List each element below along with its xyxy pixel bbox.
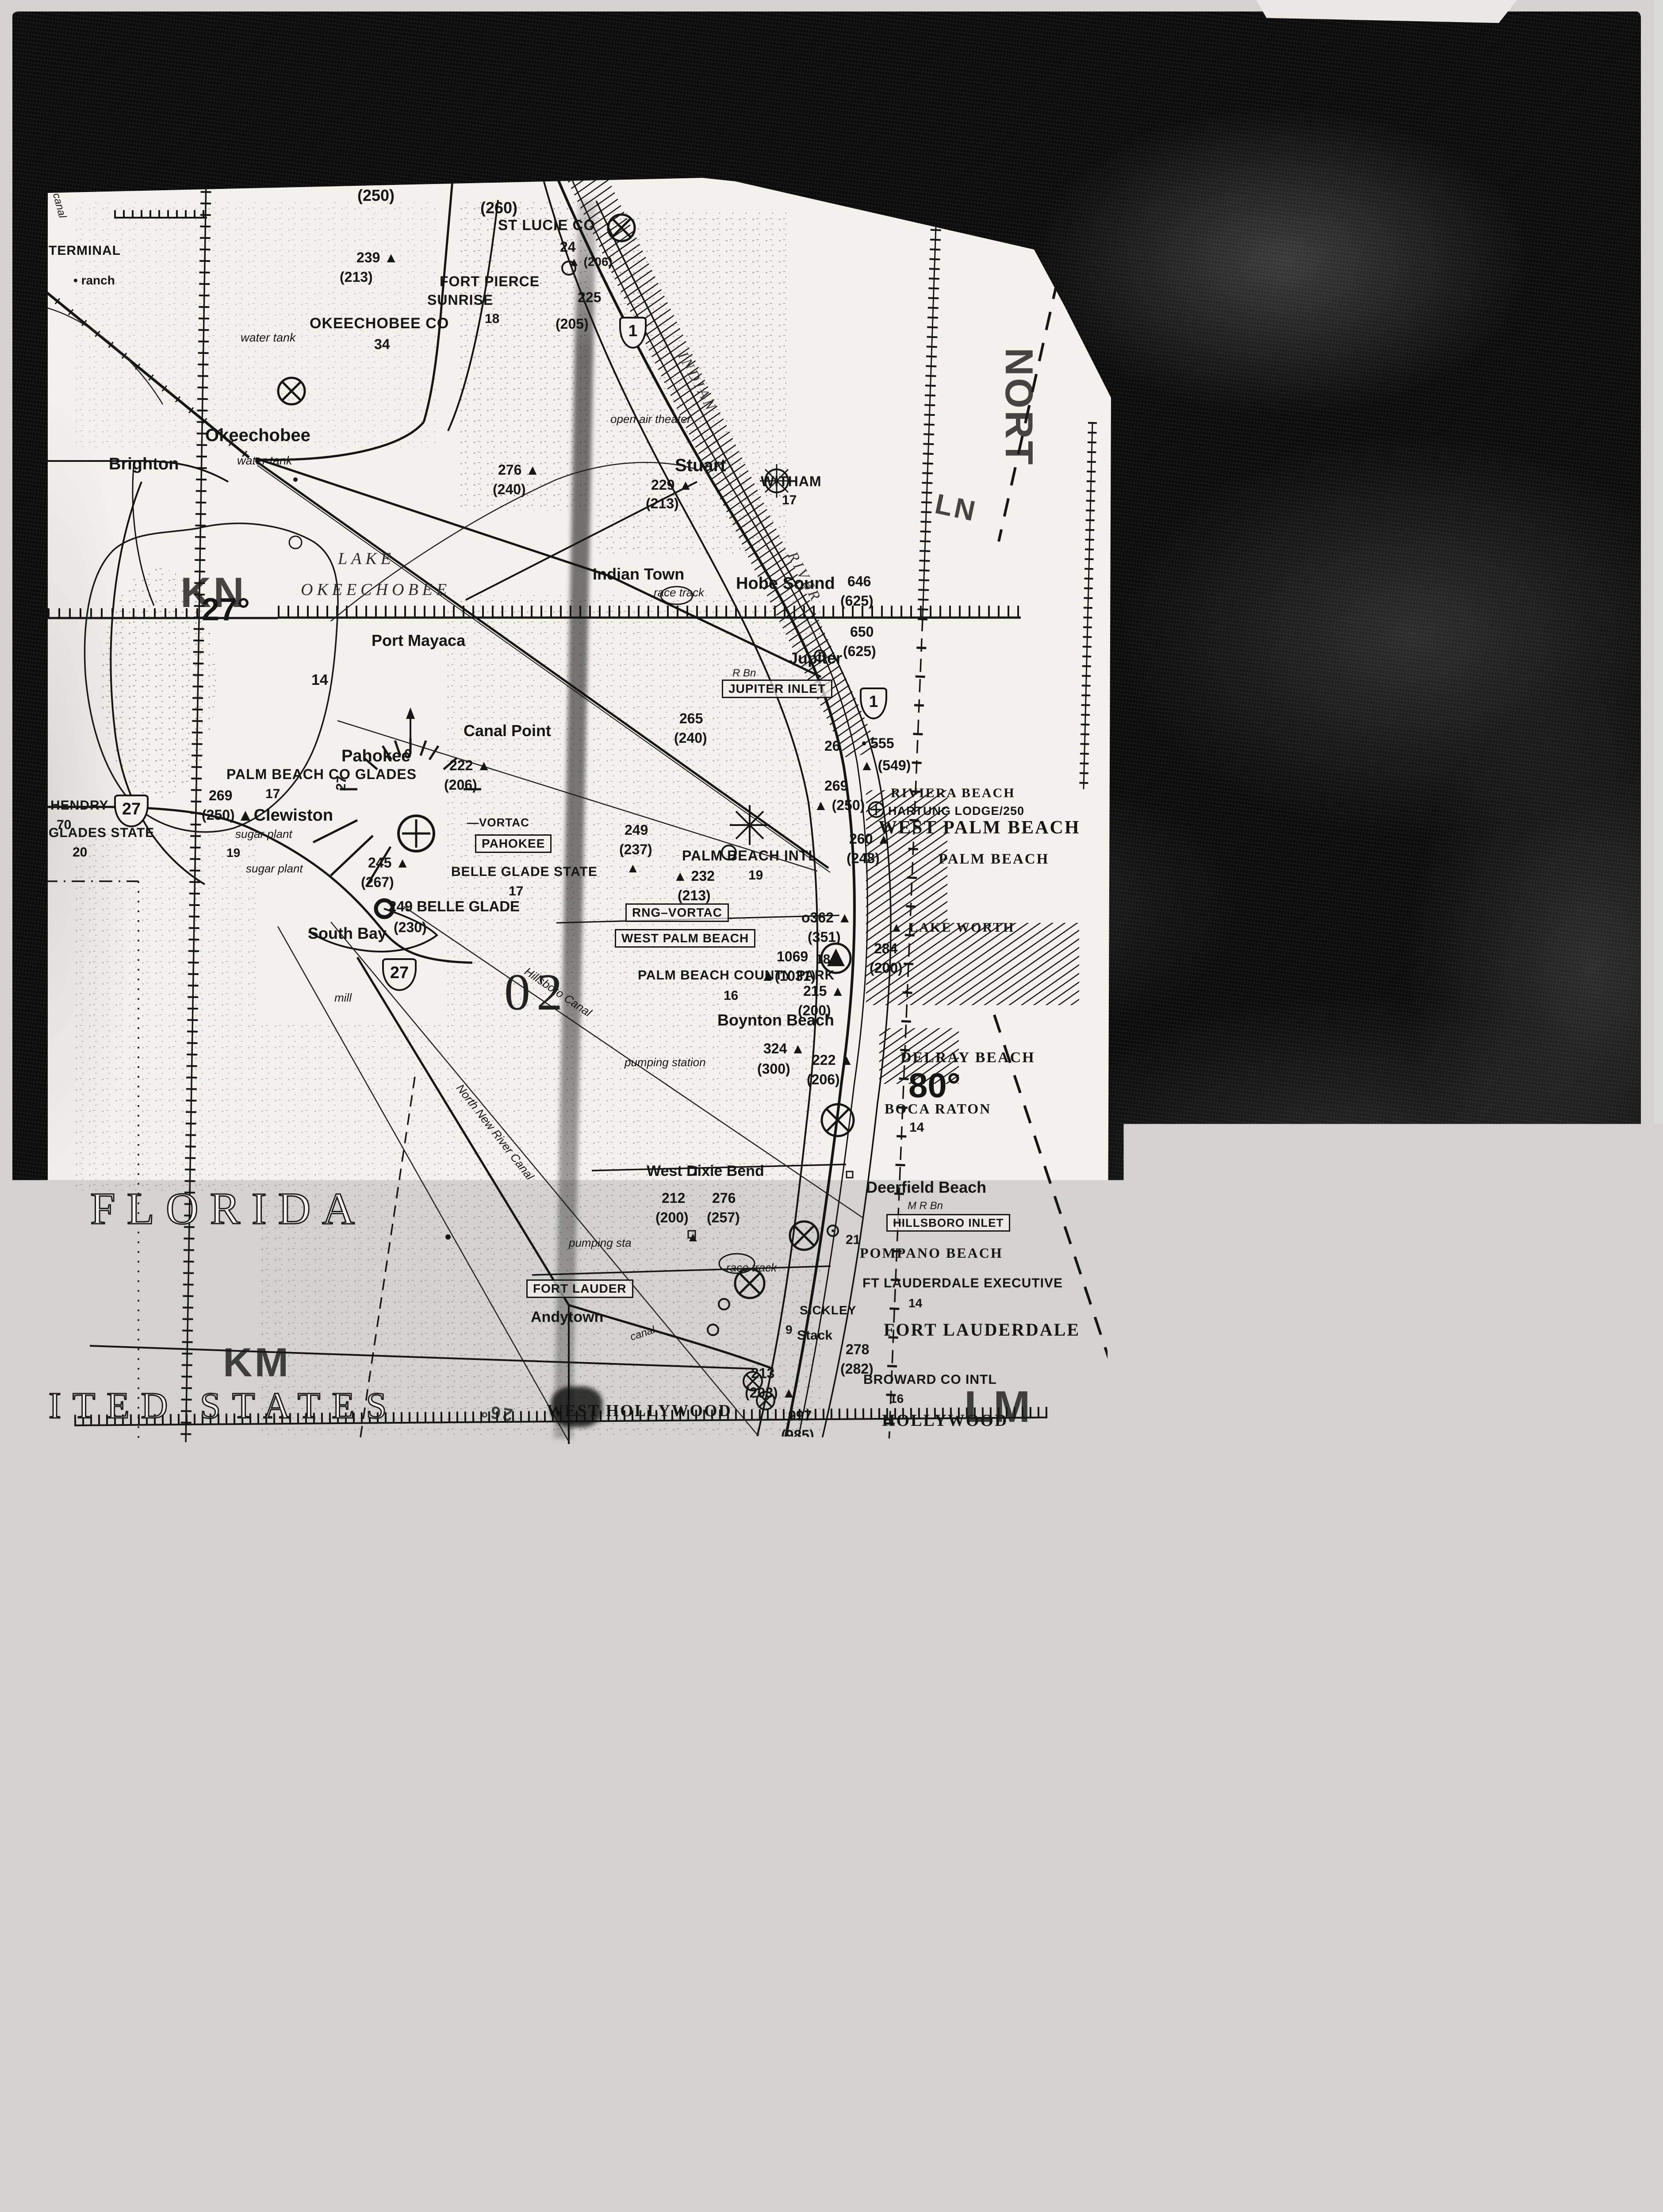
- label-r-bn: R Bn: [732, 668, 756, 679]
- label-ranch: • ranch: [73, 274, 115, 287]
- sectional-chart: (250)(260)TERMINAL• ranchcanalST LUCIE C…: [48, 174, 1118, 1447]
- label-tower-997-agl: (985): [781, 1428, 814, 1442]
- label-pbc-glades-elev: 17: [265, 787, 280, 801]
- label-tower-215: 215 ▲: [803, 984, 845, 998]
- label-pahokee-town: Pahokee: [341, 748, 410, 764]
- label-tower-269b-agl: ▲ (250): [814, 798, 865, 812]
- label-tower-249-agl: (237): [619, 842, 652, 856]
- label-tower-229-agl: (213): [646, 496, 679, 511]
- label-80-deg: 80°: [908, 1068, 961, 1102]
- label-hartung: HARTUNG LODGE/250: [888, 805, 1024, 817]
- label-tower-265: 265: [679, 711, 703, 726]
- label-lw-elev: 18: [816, 953, 830, 966]
- label-south-bay: South Bay: [308, 926, 387, 941]
- label-belle-glade: 249 BELLE GLADE: [388, 899, 520, 914]
- label-tower-222: 222 ▲: [449, 758, 491, 772]
- label-tower-260: 260 ▲: [849, 832, 891, 846]
- label-num-21: 21: [846, 1233, 860, 1247]
- label-rng-vortac-box: RNG–VORTAC: [625, 903, 729, 922]
- label-water-tank-1: water tank: [241, 332, 296, 344]
- label-west-dixie-bend: West Dixie Bend: [647, 1164, 764, 1179]
- label-race-track-2: race track: [726, 1262, 777, 1273]
- label-tower-555-agl: ▲ (549): [860, 758, 911, 772]
- label-route-alt-260: (260): [480, 200, 517, 216]
- label-united-states: ITED STATES: [49, 1387, 398, 1425]
- label-ftl-executive: FT LAUDERDALE EXECUTIVE: [862, 1277, 1063, 1290]
- label-tower-213-agl: (203) ▲: [745, 1386, 796, 1400]
- label-brighton: Brighton: [109, 456, 179, 472]
- label-okeechobee-co: OKEECHOBEE CO: [310, 316, 449, 331]
- label-26-deg: 26°: [478, 1402, 513, 1424]
- label-tower-284: 284: [874, 941, 897, 956]
- label-num-9: 9: [786, 1324, 793, 1336]
- label-witham: WITHAM: [761, 474, 822, 488]
- label-mill: mill: [334, 992, 352, 1003]
- label-tower-276b: 276: [712, 1191, 736, 1205]
- lighthouse-icon-hillsboro: [828, 1225, 838, 1236]
- label-deerfield-beach: Deerfield Beach: [866, 1179, 986, 1195]
- label-tower-245-agl: (267): [361, 875, 394, 889]
- label-rose-0: 0: [404, 748, 412, 761]
- label-sickley: SICKLEY: [800, 1304, 856, 1317]
- label-pumping-station-2: pumping sta: [569, 1237, 632, 1248]
- label-tower-212: 212: [662, 1191, 685, 1205]
- label-okeechobee-town: Okeechobee: [205, 426, 310, 444]
- label-fort-lauderdale: FORT LAUDERDALE: [884, 1321, 1080, 1339]
- label-water-tank-2: water tank: [237, 455, 292, 467]
- label-pumping-station-1: pumping station: [625, 1056, 706, 1068]
- label-tower-222b-agl: (206): [807, 1072, 840, 1087]
- label-tower-232-agl: (213): [678, 888, 711, 902]
- label-27-deg: 27°: [202, 594, 250, 626]
- label-reg-km: KM: [223, 1342, 291, 1383]
- label-reg-nort: NORT: [1000, 348, 1038, 467]
- label-palm-beach-island: PALM BEACH: [939, 852, 1049, 867]
- label-open-air-theater: open air theater: [610, 413, 691, 425]
- label-tower-269: 269: [209, 788, 232, 803]
- label-tower-997: 997: [788, 1409, 812, 1423]
- label-florida: FLORIDA: [90, 1187, 366, 1232]
- photocopy-page: { "colors":{"paper":"#f3f1ec","ink":"#16…: [0, 0, 1663, 2212]
- label-riviera-beach: RIVIERA BEACH: [891, 787, 1015, 800]
- label-tower-646: 646: [847, 574, 871, 588]
- label-indian-town: Indian Town: [593, 566, 684, 582]
- label-glades-state: GLADES STATE: [49, 826, 154, 840]
- label-pbi-elev: 19: [748, 869, 763, 882]
- label-jupiter: Jupiter: [789, 650, 842, 666]
- label-tower-239: 239 ▲: [356, 250, 398, 265]
- label-pbc-glades: PALM BEACH CO GLADES: [226, 767, 417, 781]
- label-jupiter-inlet-box: JUPITER INLET: [722, 680, 832, 698]
- label-tower-278: 278: [846, 1342, 869, 1356]
- label-tower-324: 324 ▲: [763, 1041, 805, 1056]
- label-tower-222b: 222 ▲: [812, 1053, 854, 1067]
- label-tower-284-agl: (200): [870, 961, 903, 975]
- label-tower-260-agl: (248): [847, 851, 880, 865]
- label-palm-beach-intl: PALM BEACH INTL: [682, 849, 817, 863]
- label-tower-276-agl: (240): [493, 482, 526, 496]
- label-okeechobee-co-elev: 34: [374, 337, 390, 351]
- label-wpb-vortac-box: WEST PALM BEACH: [615, 929, 755, 948]
- label-boynton-beach: Boynton Beach: [717, 1012, 834, 1028]
- page-right-margin: [1654, 0, 1663, 2212]
- label-tower-324-agl: (300): [757, 1062, 790, 1076]
- label-tower-276b-agl: (257): [707, 1210, 740, 1225]
- label-exec-elev: 14: [908, 1297, 922, 1310]
- label-tower-249: 249: [625, 823, 648, 837]
- label-glades-state-elev: 20: [73, 846, 87, 859]
- label-tower-650: 650: [850, 625, 874, 639]
- label-fort-pierce: FORT PIERCE: [440, 274, 540, 288]
- label-vortac-tag: —VORTAC: [467, 817, 529, 828]
- label-tower-245: 245 ▲: [368, 856, 410, 870]
- ink-smudge: [551, 1386, 602, 1427]
- label-hendry: HENDRY: [50, 799, 109, 812]
- label-pompano-beach: POMPANO BEACH: [860, 1246, 1003, 1260]
- vortac-icon-pahokee: [399, 816, 434, 851]
- label-broward-elev: 16: [890, 1393, 904, 1405]
- label-tower-249-sym: ▲: [626, 862, 640, 875]
- label-num-19: 19: [226, 847, 240, 859]
- label-st-lucie-elev: 24: [560, 240, 576, 254]
- label-hillsboro-inlet-box: HILLSBORO INLET: [886, 1214, 1010, 1232]
- label-delray-beach: DELRAY BEACH: [900, 1050, 1035, 1065]
- label-fort-lauder-box: FORT LAUDER: [526, 1279, 633, 1298]
- label-tower-229: 229 ▲: [651, 478, 693, 492]
- label-tower-269b: 269: [824, 779, 848, 793]
- label-lake-1: LAKE: [338, 550, 395, 567]
- label-m-r-bn: M R Bn: [908, 1201, 943, 1211]
- label-hobe-sound: Hobe Sound: [736, 575, 835, 592]
- label-sugar-plant-1: sugar plant: [235, 828, 292, 840]
- label-tower-212-agl: (200): [655, 1210, 689, 1225]
- label-reg-ln: LN: [933, 489, 980, 526]
- label-lake-2: OKEECHOBEE: [301, 581, 451, 598]
- page-left-edge: [0, 2079, 10, 2212]
- label-boca-raton: BOCA RATON: [885, 1102, 991, 1116]
- label-tower-650-agl: (625): [843, 644, 876, 658]
- label-route-alt-250: (250): [357, 188, 395, 204]
- label-west-palm-beach: WEST PALM BEACH: [878, 818, 1081, 837]
- label-tower-265-agl: (240): [674, 731, 707, 745]
- label-race-track-1: race track: [654, 587, 704, 598]
- label-tower-239-agl: (213): [340, 270, 373, 284]
- label-witham-elev: 17: [782, 494, 797, 507]
- label-tower-362-agl: (351): [808, 930, 841, 944]
- label-tower-646-agl: (625): [840, 594, 874, 608]
- label-tower-1069: 1069: [777, 949, 808, 964]
- label-fort-pierce-elev: 18: [485, 312, 499, 326]
- label-tower-232: ▲ 232: [673, 869, 715, 883]
- label-tower-213: 213: [751, 1366, 774, 1380]
- label-tower-276: 276 ▲: [498, 463, 540, 477]
- label-stuart: Stuart: [675, 457, 726, 474]
- label-bgs-elev: 17: [509, 885, 523, 898]
- vortac-icon-hartung: [869, 802, 884, 817]
- label-num-26: 26: [824, 739, 840, 753]
- photocopy-black-area: (250)(260)TERMINAL• ranchcanalST LUCIE C…: [12, 12, 1641, 2091]
- label-tower-276b-sym: ▲: [686, 1231, 700, 1244]
- label-clewiston: ▲Clewiston: [237, 807, 333, 824]
- label-belle-glade-agl: (230): [394, 920, 427, 934]
- label-pbcp-elev: 16: [724, 989, 738, 1002]
- label-canal-point: Canal Point: [464, 723, 551, 739]
- label-pahokee-box: PAHOKEE: [475, 834, 552, 853]
- label-tower-555: • 555: [862, 736, 894, 750]
- label-lake-worth: ▲ LAKE WORTH: [890, 921, 1015, 934]
- label-tower-362: o362 ▲: [801, 910, 852, 925]
- label-tower-222-agl: (206): [444, 778, 477, 792]
- page-bottom-margin: [0, 2091, 1663, 2212]
- label-reg-lm: LM: [964, 1385, 1032, 1429]
- label-terminal: TERMINAL: [49, 244, 121, 257]
- label-port-mayaca: Port Mayaca: [372, 633, 465, 649]
- label-fort-pierce-2: SUNRISE: [427, 293, 493, 307]
- label-boca-elev: 14: [909, 1121, 924, 1134]
- label-stack: Stack: [797, 1329, 832, 1342]
- label-tower-269-agl: (250): [202, 808, 235, 822]
- label-sugar-plant-2: sugar plant: [246, 863, 303, 874]
- label-lake-depth-14: 14: [311, 672, 328, 687]
- label-pb-county-park: PALM BEACH COUNTY PARK: [638, 969, 835, 982]
